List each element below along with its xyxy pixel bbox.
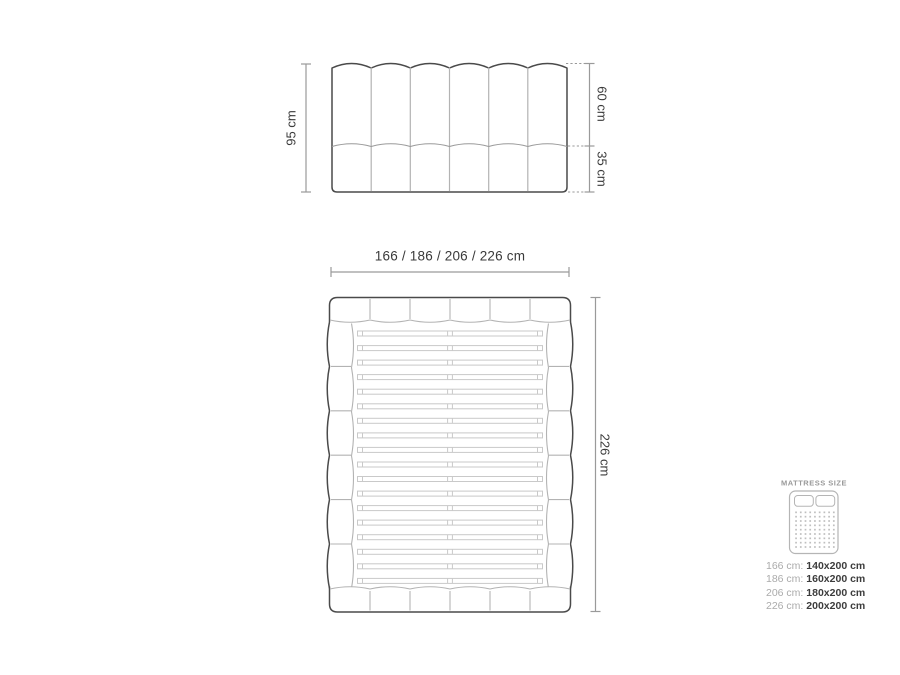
slat bbox=[358, 346, 543, 351]
slat bbox=[358, 375, 543, 380]
slat bbox=[358, 477, 543, 482]
slat bbox=[358, 404, 543, 409]
slat bbox=[358, 506, 543, 511]
slat bbox=[358, 418, 543, 423]
slat bbox=[358, 535, 543, 540]
dimension-line-width bbox=[331, 267, 569, 277]
slat bbox=[358, 462, 543, 467]
dimension-line-95 bbox=[301, 64, 311, 192]
frame-width: 166 cm: bbox=[766, 560, 803, 572]
headboard-lower-label: 35 cm bbox=[595, 151, 610, 186]
frame-width: 206 cm: bbox=[766, 587, 803, 599]
headboard-front-view bbox=[301, 64, 595, 193]
slat bbox=[358, 331, 543, 336]
mattress-dots bbox=[795, 512, 834, 548]
left-rail-inner bbox=[352, 324, 354, 589]
slat bbox=[358, 491, 543, 496]
slat bbox=[358, 447, 543, 452]
mattress-size: 160x200 cm bbox=[806, 573, 865, 585]
bed-length-label: 226 cm bbox=[598, 433, 613, 476]
pillow-right bbox=[816, 496, 835, 507]
frame-width: 186 cm: bbox=[766, 573, 803, 585]
mattress-size-title: MATTRESS SIZE bbox=[781, 479, 847, 488]
dimension-line-60-35 bbox=[585, 64, 595, 193]
bed-top-view bbox=[327, 298, 600, 613]
diagram-linework bbox=[0, 0, 900, 675]
mattress-size: 180x200 cm bbox=[806, 587, 865, 599]
slat bbox=[358, 549, 543, 554]
slat bbox=[358, 564, 543, 569]
bed-dimension-sheet: 95 cm 60 cm 35 cm 166 / 186 / 206 / 226 … bbox=[0, 0, 900, 675]
right-rail-outer bbox=[571, 322, 573, 588]
mattress-size-row: 166 cm: 140x200 cm bbox=[766, 560, 865, 573]
mattress-size-table: 166 cm: 140x200 cm 186 cm: 160x200 cm 20… bbox=[766, 560, 865, 614]
pillow-left bbox=[795, 496, 814, 507]
mattress-size-row: 206 cm: 180x200 cm bbox=[766, 587, 865, 600]
right-rail-inner bbox=[547, 324, 549, 589]
mattress-icon bbox=[790, 491, 839, 554]
slat bbox=[358, 360, 543, 365]
mattress-size: 200x200 cm bbox=[806, 600, 865, 612]
left-rail-outer bbox=[327, 322, 329, 588]
slat bbox=[358, 520, 543, 525]
bed-width-label: 166 / 186 / 206 / 226 cm bbox=[375, 249, 525, 264]
extension-dotted-lines bbox=[566, 64, 590, 193]
slats bbox=[358, 331, 543, 583]
headboard-upper-label: 60 cm bbox=[595, 86, 610, 121]
headboard-height-label: 95 cm bbox=[284, 110, 299, 145]
slat bbox=[358, 389, 543, 394]
frame-width: 226 cm: bbox=[766, 600, 803, 612]
mattress-size-row: 186 cm: 160x200 cm bbox=[766, 573, 865, 586]
mattress-size-row: 226 cm: 200x200 cm bbox=[766, 600, 865, 613]
slat bbox=[358, 433, 543, 438]
slat bbox=[358, 578, 543, 583]
mattress-size: 140x200 cm bbox=[806, 560, 865, 572]
